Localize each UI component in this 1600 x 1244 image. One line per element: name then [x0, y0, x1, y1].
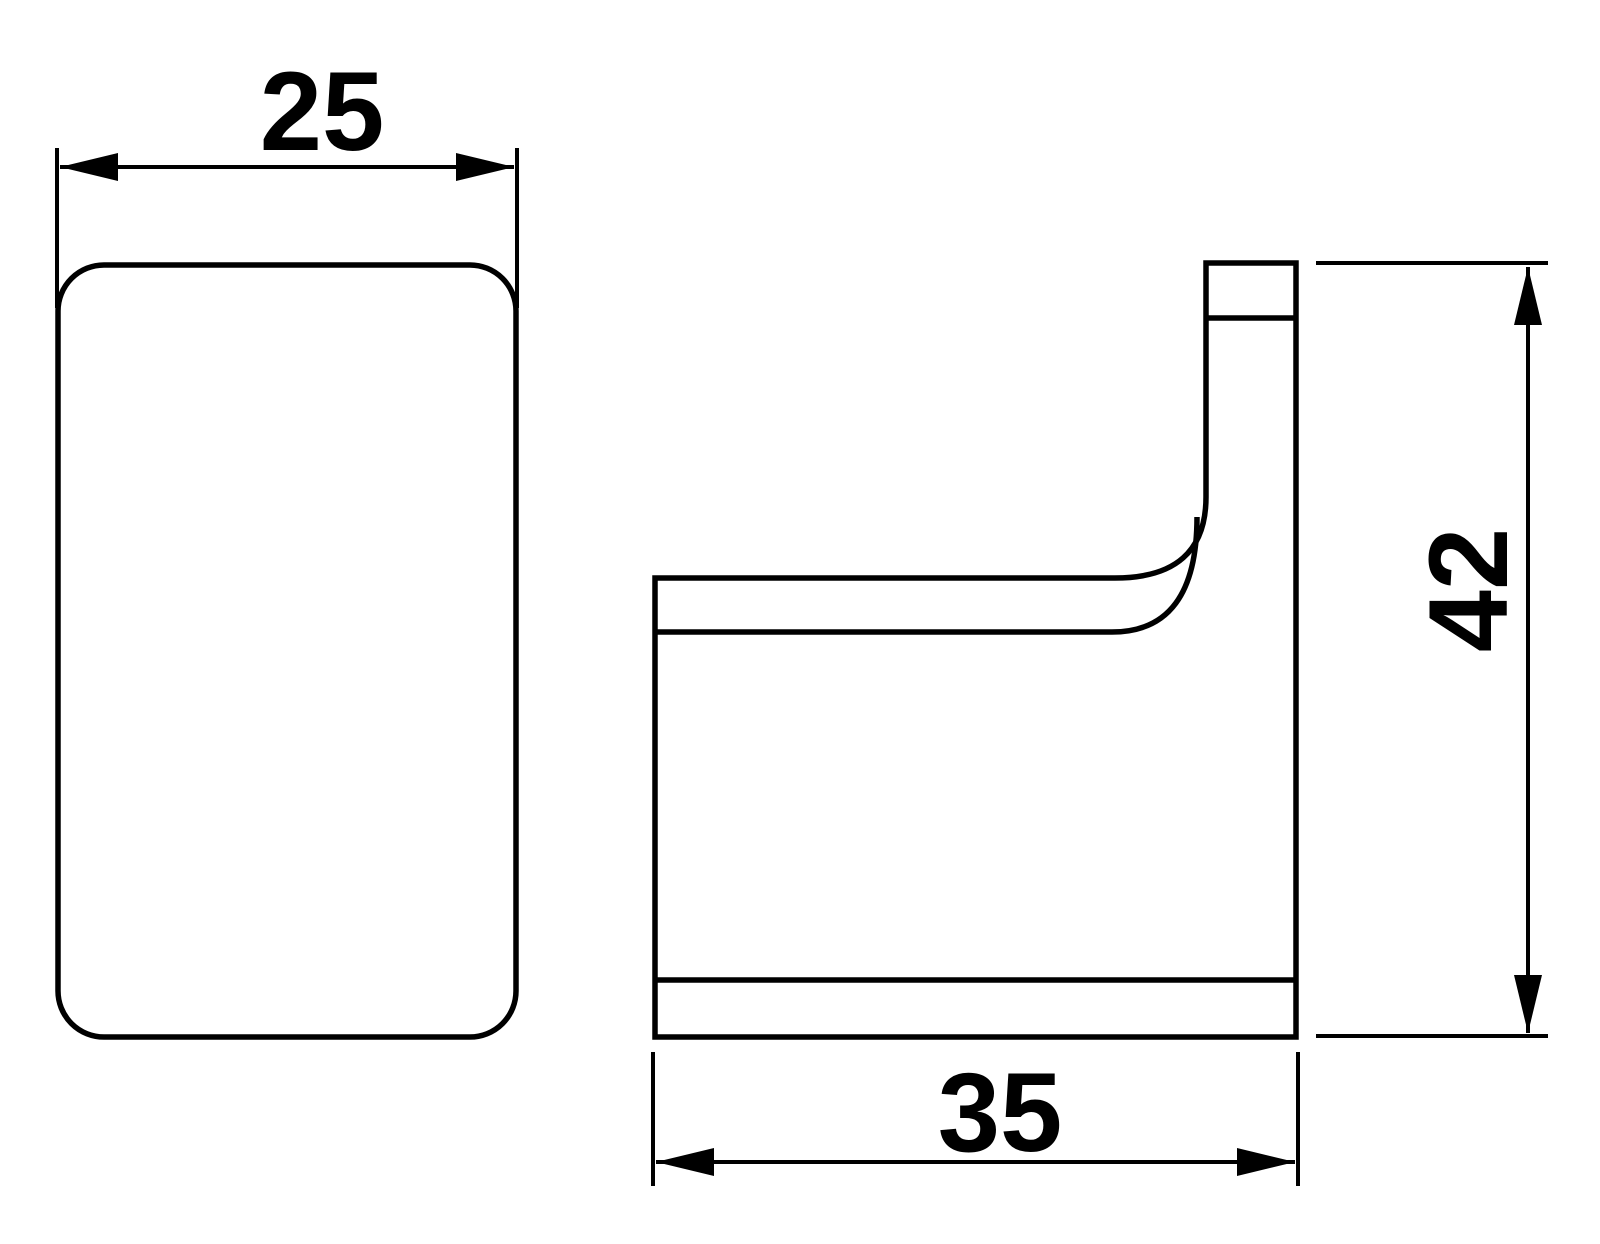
depth-dimension-value: 35 — [938, 1050, 1063, 1175]
side-view-outline — [655, 263, 1296, 1037]
front-view-outline — [58, 265, 516, 1037]
front-view — [58, 265, 516, 1037]
width-dimension-value: 25 — [260, 49, 385, 174]
dimension-drawing: 25 42 35 — [0, 0, 1600, 1244]
arrow-right-icon — [1237, 1148, 1295, 1176]
arrow-left-icon — [656, 1148, 714, 1176]
side-view-inner-curve — [655, 517, 1197, 632]
height-dimension-value: 42 — [1406, 528, 1531, 653]
arrow-up-icon — [1514, 267, 1542, 325]
arrow-left-icon — [60, 153, 118, 181]
arrow-down-icon — [1514, 975, 1542, 1033]
technical-drawing-canvas: 25 42 35 — [0, 0, 1600, 1244]
height-dimension: 42 — [1316, 263, 1548, 1036]
arrow-right-icon — [456, 153, 514, 181]
side-view — [655, 263, 1296, 1037]
depth-dimension: 35 — [653, 1050, 1298, 1186]
width-dimension: 25 — [57, 49, 517, 308]
